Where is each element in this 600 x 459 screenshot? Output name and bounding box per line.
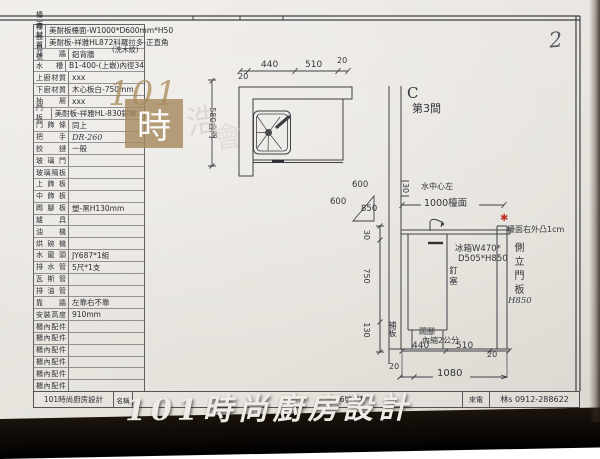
- row-label: 水龍頭: [34, 250, 69, 261]
- water-center-note: 水中心左: [421, 183, 453, 191]
- table-row: 中飾板: [34, 191, 144, 203]
- row-label: 水槽: [34, 61, 66, 72]
- row-label: 玻璃門: [34, 155, 69, 166]
- row-label: 中飾板: [34, 191, 69, 202]
- page-number: 2: [548, 27, 564, 52]
- table-row: 櫃內配件: [34, 368, 144, 380]
- dim-w-1080: 1080: [437, 369, 462, 379]
- room-letter: C: [407, 86, 418, 101]
- row-label: 玻璃隔板: [34, 167, 69, 178]
- triangle-dim-600a: 600: [352, 181, 368, 190]
- fridge-size-line2: D505*H850: [458, 255, 508, 264]
- dim-w-20-left: 20: [389, 363, 399, 371]
- dim-w-510: 510: [456, 342, 473, 351]
- red-mark: ✱: [500, 214, 508, 224]
- row-label: 靠牆: [34, 297, 69, 308]
- row-label: 櫃內配件: [34, 345, 69, 356]
- dim-h-30: 30: [362, 225, 370, 245]
- table-row: 排油管: [34, 286, 144, 298]
- counter-overhang-note: 檯面右外凸1cm: [507, 226, 564, 234]
- table-row: 上飾板: [34, 179, 144, 191]
- row-value: 左靠右不靠: [69, 297, 144, 308]
- plan-dim-20-left: 20: [238, 73, 248, 81]
- triangle-dim-600b: 600: [330, 198, 346, 207]
- row-label: 安裝高度: [34, 309, 69, 320]
- table-row: 排水管5尺*1支: [34, 262, 144, 274]
- table-row: 玻璃門: [34, 155, 144, 167]
- counter-dim-1000: 1000檯面: [424, 199, 467, 209]
- photo-right-edge: [589, 0, 600, 422]
- row-label: 把手: [34, 132, 69, 143]
- kitchen-spec-sheet-photo: 檯面材質美耐板檯面-W1000*D600mm*H50檯面色號美耐板-祥雅HL87…: [0, 0, 600, 422]
- row-label: 櫃內配件: [34, 321, 69, 332]
- row-label: 排水管: [34, 262, 69, 273]
- company-name: 101時尚廚房設計: [34, 392, 114, 407]
- row-label: 櫃內配件: [34, 368, 69, 379]
- dim-offset-30: 30: [401, 178, 409, 198]
- row-label: 檯面色號: [34, 37, 46, 48]
- plan-dim-510: 510: [305, 61, 322, 70]
- row-label: 門板: [34, 108, 52, 119]
- table-row: 油機: [34, 226, 144, 238]
- row-label: 油機: [34, 226, 69, 237]
- table-row: 踢腳板塑-黑H130mm: [34, 203, 144, 215]
- dim-w-20-right: 20: [487, 351, 497, 359]
- room-name: 第3間: [412, 103, 441, 114]
- table-row: 檯面材質美耐板檯面-W1000*D600mm*H50: [34, 25, 144, 37]
- row-label: 櫃內配件: [34, 357, 69, 368]
- table-row: 瓦斯管: [34, 274, 144, 286]
- plan-dim-20-right: 20: [337, 57, 347, 65]
- row-label: 門飾條: [34, 120, 69, 131]
- countertop-color-note: (洗木紋): [112, 45, 138, 55]
- row-label: 上飾板: [34, 179, 69, 190]
- row-label: 櫃內配件: [34, 333, 69, 344]
- table-row: 櫃內配件: [34, 345, 144, 357]
- row-label: 櫃內配件: [34, 380, 69, 391]
- row-label: 鉸鏈: [34, 143, 69, 154]
- table-row: 櫃內配件: [34, 357, 144, 369]
- watermark-shi: 時: [137, 99, 171, 148]
- side-panel-label: 側立門板: [512, 242, 522, 298]
- plan-dim-440: 440: [261, 61, 278, 70]
- row-value: JY687*1組: [69, 250, 144, 261]
- table-row: 櫃內配件: [34, 321, 144, 333]
- table-row: 安裝高度910mm: [34, 309, 144, 321]
- watermark-bottom-brand: 101時尚廚房設計: [125, 383, 413, 430]
- row-label: 爐具: [34, 215, 69, 226]
- row-value: 美耐板檯面-W1000*D600mm*H50: [46, 25, 173, 36]
- side-panel-height: H850: [508, 297, 532, 306]
- dim-h-750: 750: [362, 264, 370, 288]
- row-value: 5尺*1支: [69, 262, 144, 273]
- dim-h-130: 130: [362, 318, 370, 342]
- row-value: 美耐板-祥雅HL872科羅拉多-正直角: [46, 37, 169, 48]
- kick-label: 踢腳: [419, 328, 435, 336]
- row-label: 背牆: [34, 49, 69, 60]
- table-row: 櫃內配件: [34, 333, 144, 345]
- fridge-size-line1: 冰箱W470*: [455, 245, 501, 254]
- watermark-ghost-2: 會: [210, 112, 245, 158]
- watermark-logo-block: 時: [125, 99, 183, 148]
- row-value: B1-400-(上嵌)內徑34: [66, 60, 144, 71]
- row-label: 烘碗機: [34, 238, 69, 249]
- row-label: 上廚材質: [34, 72, 69, 83]
- table-row: 爐具: [34, 215, 144, 227]
- table-row: 玻璃隔板: [34, 167, 144, 179]
- row-value: 塑-黑H130mm: [69, 203, 144, 214]
- row-value: 910mm: [69, 310, 144, 319]
- dim-w-440: 440: [412, 342, 429, 351]
- phone-number: 林s 0912-288622: [490, 392, 579, 407]
- filler-board-label: 補板: [388, 321, 396, 337]
- row-label: 踢腳板: [34, 203, 69, 214]
- table-row: 水槽B1-400-(上嵌)內徑34: [34, 61, 144, 73]
- triangle-dim-850: 850: [361, 205, 377, 214]
- table-row: 靠牆左靠右不靠: [34, 297, 144, 309]
- row-label: 排油管: [34, 286, 69, 297]
- row-label: 瓦斯管: [34, 274, 69, 285]
- table-row: 烘碗機: [34, 238, 144, 250]
- nail-plug-note: 釘塞: [448, 266, 457, 287]
- table-row: 水龍頭JY687*1組: [34, 250, 144, 262]
- row-label: 下廚材質: [34, 84, 69, 95]
- phone-label: 來電: [463, 392, 490, 407]
